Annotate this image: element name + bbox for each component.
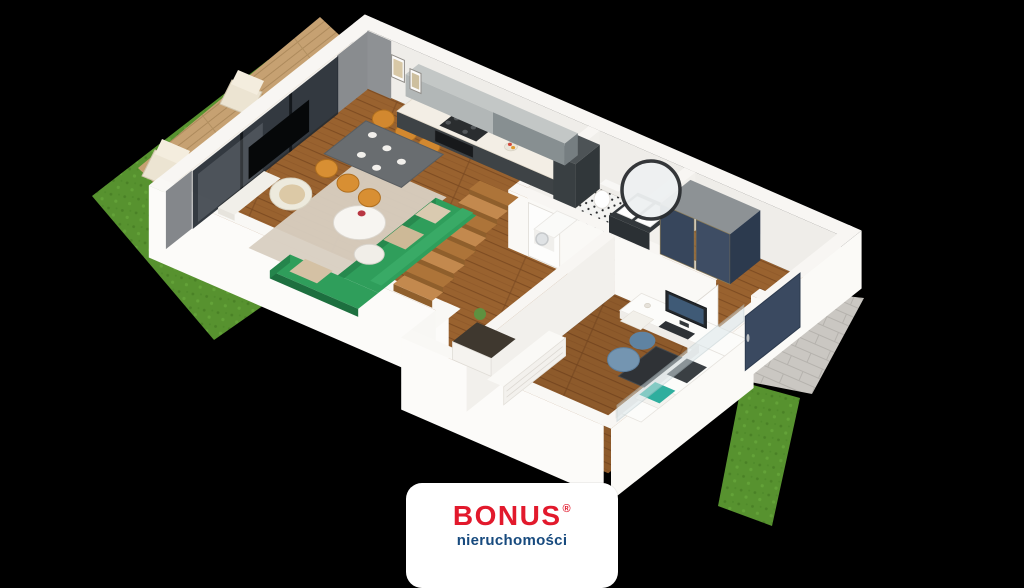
cooktop-burner-4 — [462, 130, 468, 134]
cooktop-burner-3 — [445, 121, 451, 125]
brand-logo-card: BONUS® nieruchomości — [406, 483, 618, 588]
dresser-plant — [474, 308, 486, 320]
coffee-table-small — [354, 244, 384, 264]
plate-4 — [357, 152, 366, 158]
armchair-cushion — [279, 184, 305, 204]
desk-cup — [645, 303, 651, 307]
brand-name-line: BONUS® — [406, 502, 618, 530]
page-background: { "logo": { "brand": "BONUS", "registere… — [0, 0, 1024, 576]
coffee-table-berries — [358, 210, 366, 216]
registered-trademark-symbol: ® — [563, 503, 573, 515]
dining-chair-4 — [316, 160, 338, 178]
office-chair-seat — [608, 348, 640, 372]
dining-chair-6 — [358, 189, 380, 207]
plate-1 — [368, 132, 377, 138]
plate-2 — [382, 145, 391, 151]
toilet-bowl — [594, 190, 610, 208]
office-chair-back — [629, 332, 655, 350]
plate-3 — [397, 159, 406, 165]
front-door-handle — [747, 334, 750, 342]
plate-5 — [372, 165, 381, 171]
brand-name: BONUS — [453, 500, 562, 531]
brand-subtitle: nieruchomości — [406, 532, 618, 549]
fruit-orange — [511, 146, 515, 149]
dining-chair-5 — [337, 174, 359, 192]
coffee-table-main — [334, 206, 386, 240]
curtain-north — [367, 31, 391, 99]
bathroom-mirror — [622, 161, 680, 219]
washing-machine-door — [536, 233, 548, 245]
fruit-red — [508, 143, 512, 146]
